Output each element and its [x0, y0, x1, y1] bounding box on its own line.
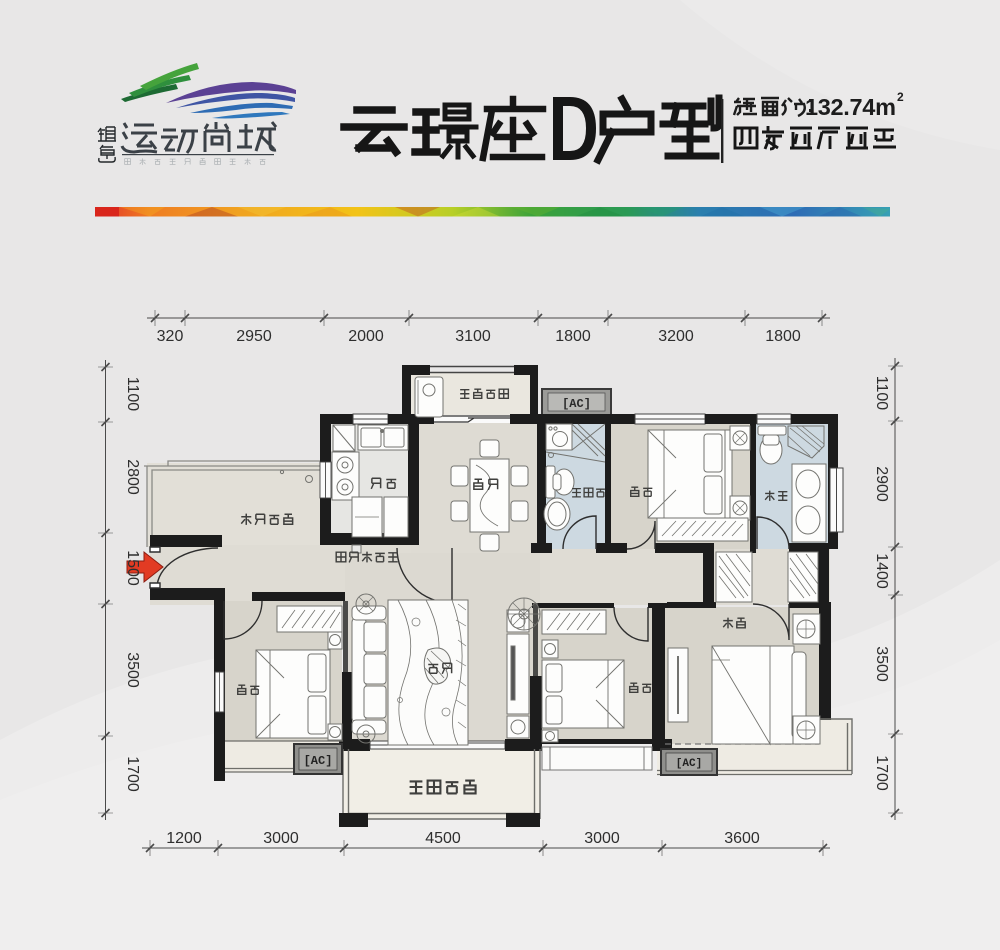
svg-text:2900: 2900	[873, 466, 890, 502]
svg-text:1200: 1200	[166, 830, 202, 847]
svg-text:2950: 2950	[236, 328, 272, 345]
svg-text:3000: 3000	[263, 830, 299, 847]
svg-text:132.74m: 132.74m	[805, 94, 896, 120]
svg-text:1100: 1100	[124, 377, 141, 412]
svg-text:2000: 2000	[348, 328, 384, 345]
svg-text:1700: 1700	[124, 756, 141, 792]
svg-text:3000: 3000	[584, 830, 620, 847]
svg-text:1800: 1800	[555, 328, 591, 345]
svg-text:3600: 3600	[724, 830, 760, 847]
svg-text:1500: 1500	[124, 550, 141, 586]
svg-text:2: 2	[897, 90, 904, 104]
svg-text:[AC]: [AC]	[562, 397, 591, 411]
svg-text:3500: 3500	[873, 646, 890, 682]
svg-text:2800: 2800	[124, 459, 141, 495]
svg-text:[AC]: [AC]	[676, 758, 702, 770]
svg-text:320: 320	[157, 328, 184, 345]
svg-text:1700: 1700	[873, 755, 890, 791]
svg-text:1400: 1400	[873, 553, 890, 589]
svg-text:1800: 1800	[765, 328, 801, 345]
svg-text:4500: 4500	[425, 830, 461, 847]
svg-text:[AC]: [AC]	[304, 754, 333, 768]
svg-text:3200: 3200	[658, 328, 694, 345]
svg-text:1100: 1100	[873, 376, 890, 411]
svg-text:3100: 3100	[455, 328, 491, 345]
svg-text:3500: 3500	[124, 652, 141, 688]
